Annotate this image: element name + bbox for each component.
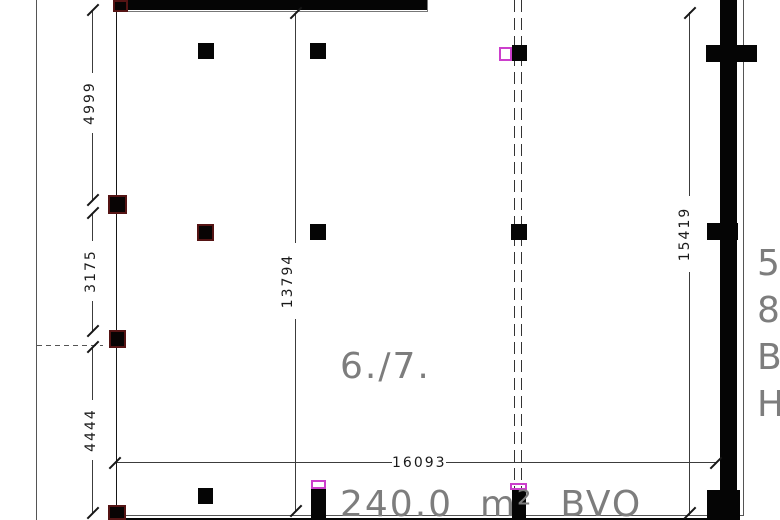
dim-line-left-seg [92, 10, 93, 82]
dim-label-4999: 4999 [82, 73, 98, 133]
column [512, 45, 527, 61]
room-left-boundary-line [116, 11, 117, 516]
dim-line-left-seg [92, 347, 93, 406]
adjacent-room-label-fragment: H [757, 385, 780, 425]
dim-line-right-seg [689, 262, 690, 515]
column [707, 223, 738, 240]
adjacent-room-label-fragment: B [757, 338, 780, 378]
adjacent-room-label-fragment: 5 [757, 244, 780, 284]
column [108, 505, 126, 520]
wall-right-outline [743, 0, 744, 516]
dim-label-3175: 3175 [83, 241, 99, 301]
floor-plan-drawing: 4999 3175 4444 13794 15419 16093 6./7. 2… [0, 0, 780, 520]
column [310, 43, 326, 59]
column [311, 489, 326, 520]
column [197, 224, 214, 241]
dim-tick [684, 7, 697, 20]
wall-top-outline [117, 11, 427, 12]
adjacent-room-label-fragment: 8 [757, 291, 780, 331]
wall-top [113, 0, 427, 10]
highlight-box [311, 480, 326, 489]
dim-line-left-seg [92, 454, 93, 513]
dim-label-13794: 13794 [280, 243, 296, 319]
dim-tick [87, 194, 100, 207]
wall-top-endcap [427, 0, 428, 12]
room-label-area: 240.0 m² BVO [340, 482, 642, 520]
dim-tick [87, 4, 100, 17]
column [198, 488, 213, 504]
dim-tick [87, 507, 100, 520]
dim-label-4444: 4444 [83, 400, 99, 460]
column [706, 45, 757, 62]
wall-right [720, 0, 737, 520]
dim-line-left-seg [92, 124, 93, 200]
dim-line-right-seg [689, 12, 690, 205]
column [113, 0, 128, 12]
dim-tick [87, 325, 100, 338]
highlight-box [499, 47, 512, 61]
column [511, 224, 527, 240]
dim-tick [87, 207, 100, 220]
room-label-number: 6./7. [340, 344, 642, 390]
column [310, 224, 326, 240]
dim-line-center-seg [295, 318, 296, 512]
dim-tick [87, 341, 100, 354]
left-outer-line [36, 0, 37, 520]
column [198, 43, 214, 59]
column [108, 195, 127, 214]
room-label: 6./7. 240.0 m² BVO Houtmarkt 41/43 [340, 252, 642, 520]
dim-label-15419: 15419 [677, 196, 693, 272]
dim-line-center-seg [295, 13, 296, 245]
dim-tick [109, 457, 122, 470]
column [109, 330, 126, 348]
column [707, 490, 740, 520]
